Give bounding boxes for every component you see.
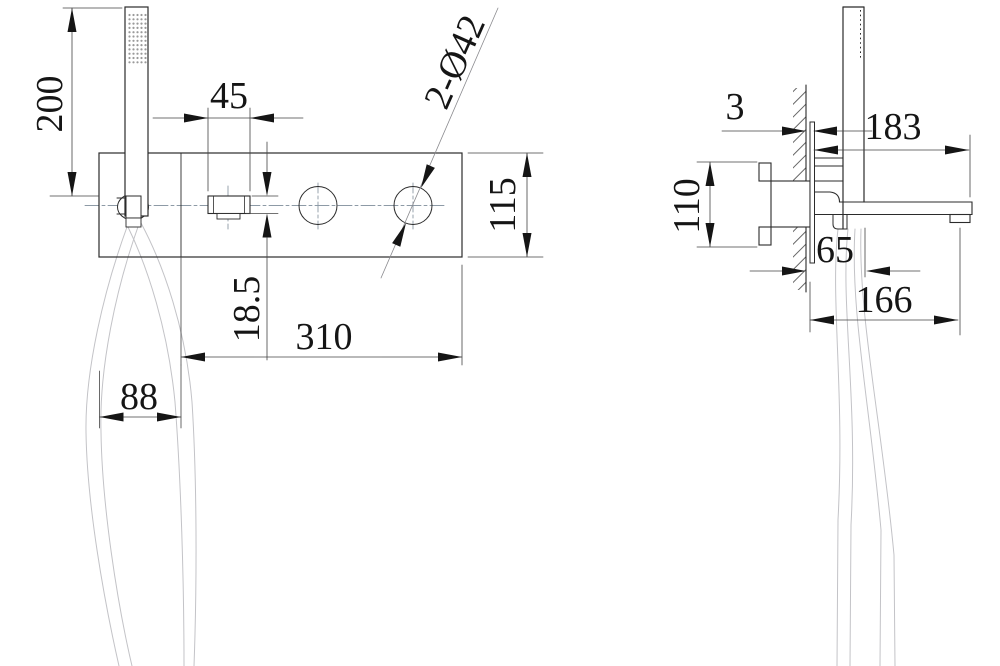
lever-handle [208,196,250,219]
dim-label-110: 110 [666,178,708,234]
hand-shower-wand-side [843,7,864,229]
dim-label-166: 166 [856,279,913,321]
dim-label-183: 183 [865,106,922,148]
dim-label-2-d42: 2-Ø42 [416,9,494,115]
front-view: 200 45 115 18.5 [29,7,543,666]
dim-label-18-5: 18.5 [226,276,268,343]
dim-label-200: 200 [29,76,71,133]
dim-45 [153,108,303,191]
dim-label-45: 45 [210,75,248,117]
dim-label-65: 65 [816,229,854,271]
dim-label-310: 310 [296,316,353,358]
technical-drawing-canvas: 200 45 115 18.5 [0,0,1000,666]
dim-label-88: 88 [120,376,158,418]
wall-escutcheon-plate [810,122,815,263]
mounting-plate [99,153,462,257]
shower-hose-front [86,223,196,666]
side-view: 3 183 110 65 [666,7,972,666]
mixer-drawing: 200 45 115 18.5 [0,0,1000,666]
spout-side [815,158,973,229]
hand-shower-wand [125,7,148,216]
dim-label-3: 3 [726,86,745,128]
dim-label-115: 115 [482,177,524,233]
